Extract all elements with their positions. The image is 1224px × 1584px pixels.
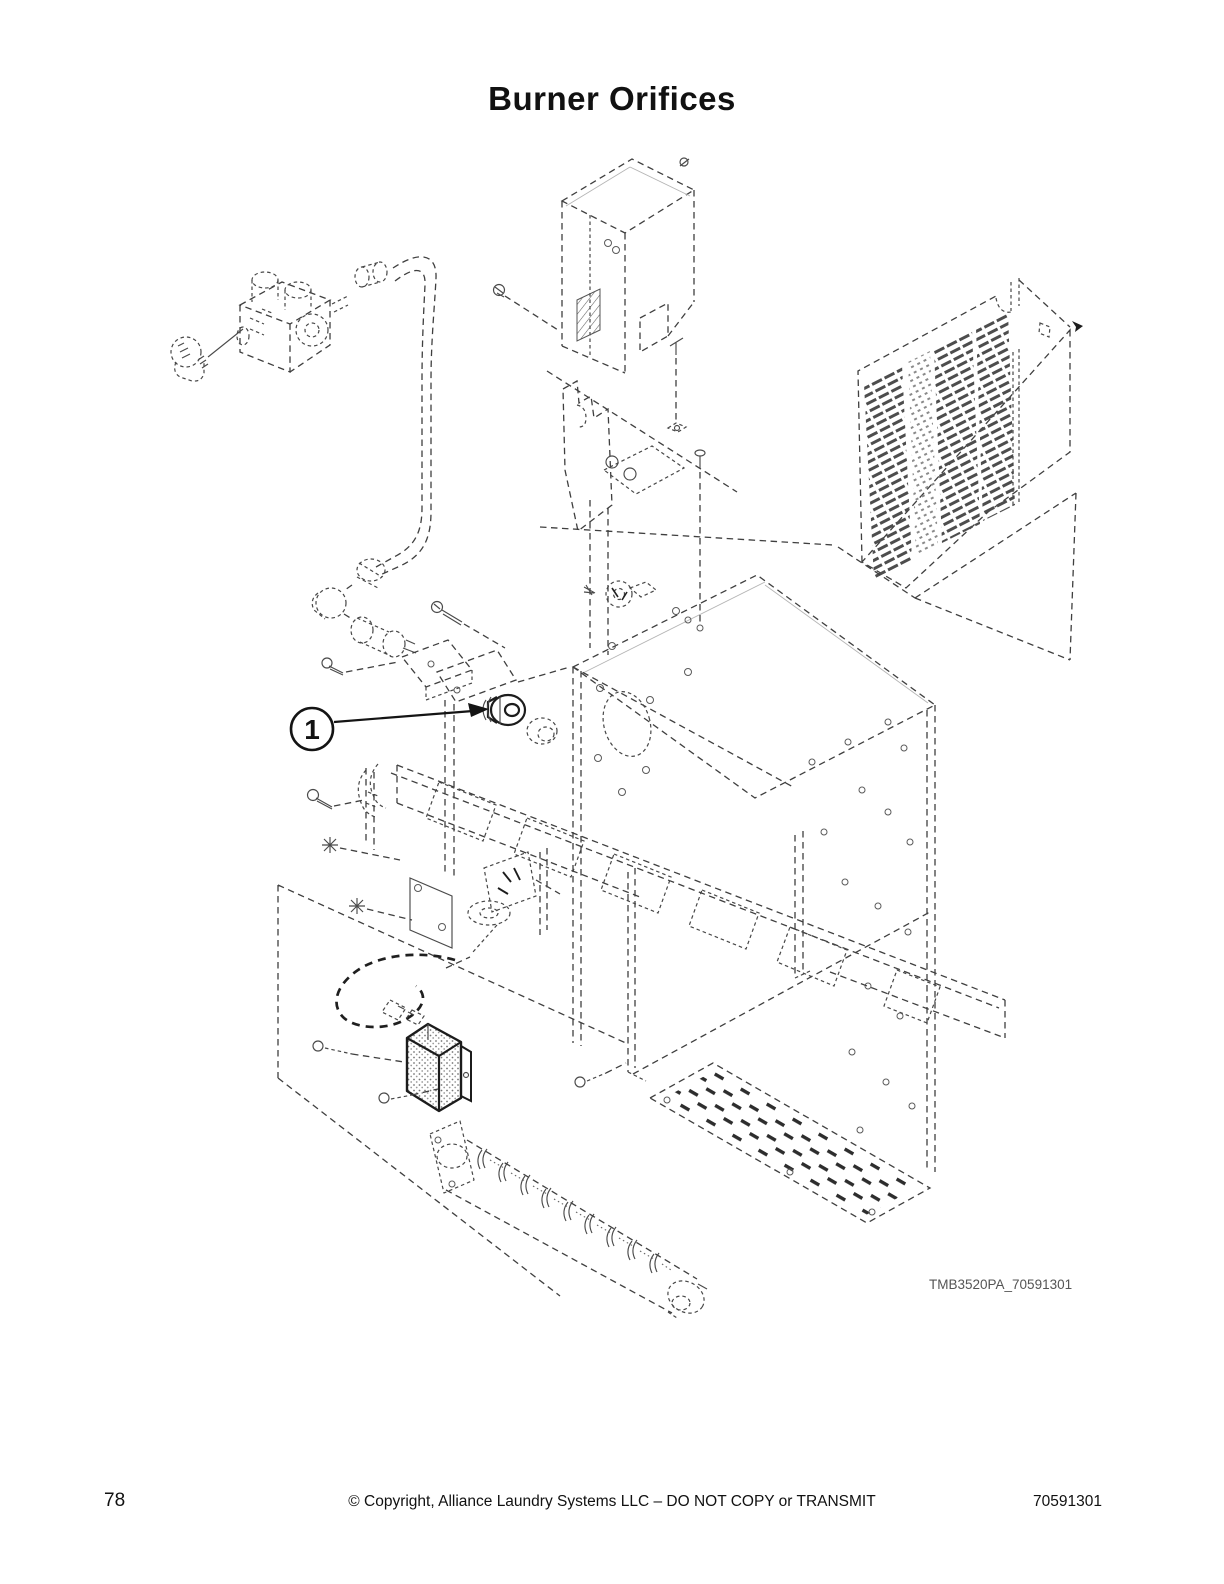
ignition-box-drawing [494,158,695,373]
mounting-bracket-drawing [540,338,833,655]
callout-arrow [334,711,473,722]
diagram-code-label: TMB3520PA_70591301 [929,1277,1072,1292]
burner-rail-drawing [308,764,1006,1038]
burner-tube-drawing [430,1121,710,1319]
burner-orifice-part-drawing [483,695,557,744]
gas-pipe-drawing [376,257,436,576]
mesh-screen-box-drawing [407,1024,471,1111]
heat-shield-drawing [838,278,1083,660]
screw-holes [809,719,915,1133]
callout-1: 1 [291,703,489,750]
perforated-panel-drawing [650,1063,930,1223]
exploded-diagram: 1 [0,0,1224,1584]
pipe-fittings-drawing [312,559,570,878]
manual-page: Burner Orifices [0,0,1224,1584]
document-number: 70591301 [1033,1493,1102,1511]
wire-harness-drawing [336,955,470,1027]
gas-valve-assembly-drawing [171,262,387,381]
callout-arrowhead [468,703,489,717]
callout-label: 1 [304,714,320,745]
